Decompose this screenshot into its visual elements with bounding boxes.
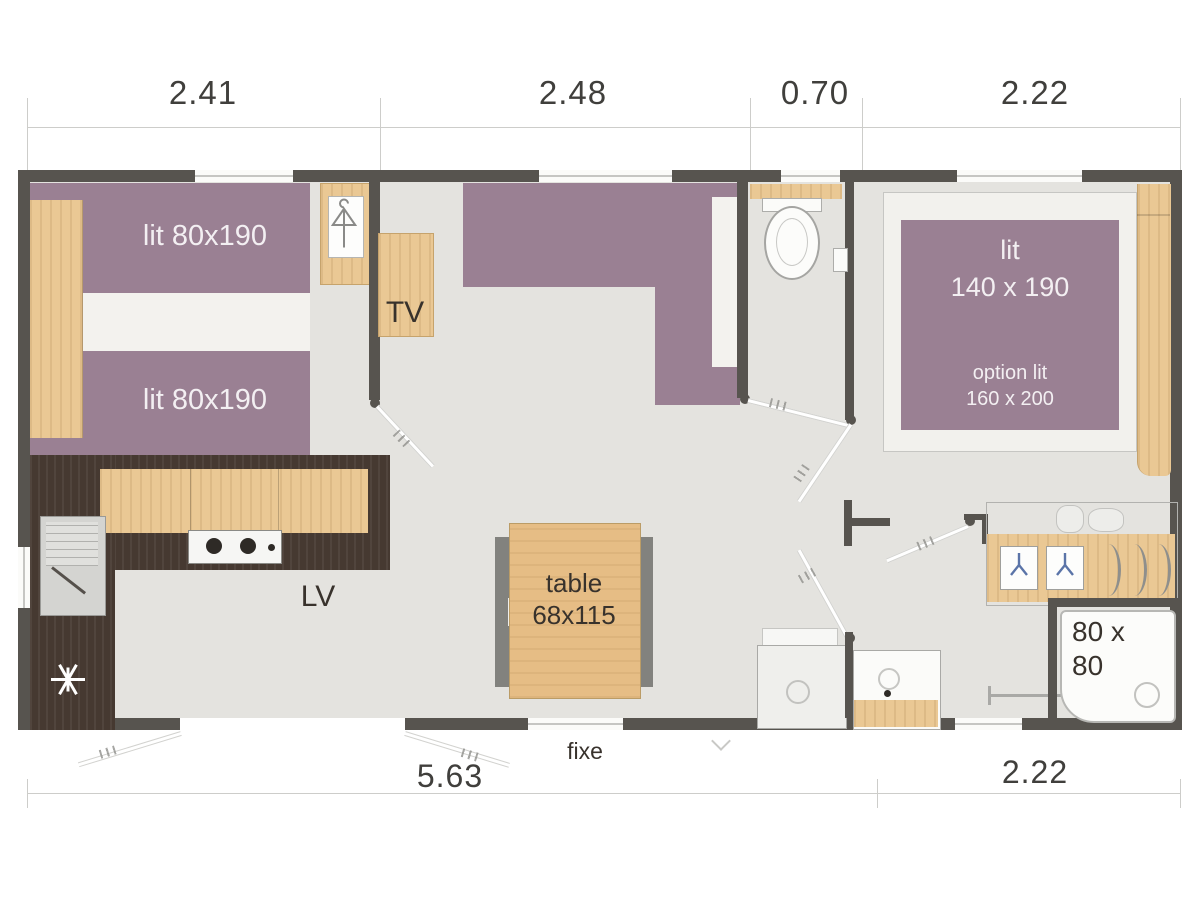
- wall-left: [18, 170, 30, 547]
- wall-bottom: [405, 718, 528, 730]
- worktop-seam: [190, 469, 191, 533]
- table-label-2: 68x115: [509, 600, 639, 631]
- towel-icon: [1122, 544, 1147, 596]
- faucet-icon: [1054, 551, 1076, 581]
- dimension-tick: [1180, 779, 1181, 808]
- kitchen-worktop: [100, 469, 368, 533]
- headboard-shelf: [30, 200, 83, 438]
- wall-top: [840, 170, 957, 182]
- wall-wc-left: [737, 182, 748, 398]
- water-heater-base: [854, 700, 938, 727]
- toiletries: [1088, 508, 1124, 532]
- wardrobe-right-seam: [1137, 214, 1170, 216]
- window-bedroom-left: [195, 170, 293, 182]
- wall-top: [293, 170, 539, 182]
- beds-gap: [82, 293, 310, 351]
- wall-shower-left: [1048, 598, 1057, 730]
- faucet-icon: [1008, 551, 1030, 581]
- stove-burner: [206, 538, 222, 554]
- tv-label: TV: [374, 296, 436, 330]
- dimension-tick: [1180, 98, 1181, 172]
- wall-top: [1082, 170, 1182, 182]
- bed-bottom-label: lit 80x190: [90, 384, 320, 417]
- wall-top: [672, 170, 781, 182]
- wc-shelf: [750, 184, 842, 199]
- washbasin: [1000, 546, 1038, 590]
- door-swing-marks: [99, 746, 117, 759]
- toilet-bowl-inner: [776, 218, 808, 266]
- wall-stub-hall: [846, 518, 890, 526]
- window-kitchen: [18, 547, 30, 608]
- double-bed-label-1: lit: [901, 235, 1119, 266]
- towel-icon: [1146, 544, 1171, 596]
- wardrobe-right: [1137, 184, 1171, 476]
- window-bathroom: [955, 718, 1022, 730]
- window-living: [539, 170, 672, 182]
- dimension-top-3: 0.70: [735, 74, 895, 112]
- washing-machine-door: [786, 680, 810, 704]
- dimension-bottom-right: 2.22: [965, 754, 1105, 791]
- sofa-side-shelf: [712, 197, 738, 367]
- washbasin: [1046, 546, 1084, 590]
- entry-door-leaf-left: [78, 731, 182, 767]
- dimension-tick: [380, 98, 381, 172]
- wall-top: [18, 170, 195, 182]
- dimension-tick: [27, 98, 28, 172]
- towel-icon: [1096, 544, 1121, 596]
- toilet-paper-holder: [833, 248, 848, 272]
- dimension-tick: [862, 98, 863, 172]
- dimension-line-top: [27, 127, 1180, 128]
- floor-plan: 2.41 2.48 0.70 2.22 lit 80x190 lit 80x19…: [0, 0, 1200, 900]
- double-bed-option-1: option lit: [901, 362, 1119, 385]
- stove-burner: [240, 538, 256, 554]
- toiletries: [1056, 505, 1084, 533]
- window-fixed: [528, 718, 623, 730]
- dimension-tick: [27, 779, 28, 808]
- sink-drainer: [46, 522, 98, 566]
- dimension-tick: [750, 98, 751, 172]
- wall-stub-appliance: [845, 632, 853, 718]
- shower-label-2: 80: [1072, 650, 1158, 682]
- window-bedroom-right: [957, 170, 1082, 182]
- wall-shower-top: [1048, 598, 1182, 607]
- heater-dot: [884, 690, 891, 697]
- dimension-top-4: 2.22: [955, 74, 1115, 112]
- window-wc: [781, 170, 840, 182]
- bed-top-label: lit 80x190: [90, 220, 320, 253]
- dimension-top-1: 2.41: [123, 74, 283, 112]
- dimension-top-2: 2.48: [493, 74, 653, 112]
- double-bed-option-2: 160 x 200: [901, 388, 1119, 411]
- snowflake-icon: [48, 660, 88, 700]
- worktop-seam: [278, 469, 279, 533]
- shower-label-1: 80 x: [1072, 616, 1158, 648]
- wall-wc-right: [845, 182, 854, 420]
- dimension-tick: [877, 779, 878, 808]
- wall-stub-hall: [844, 500, 852, 546]
- dishwasher-label: LV: [286, 580, 350, 614]
- shower-drain: [1134, 682, 1160, 708]
- vent-mark: [711, 731, 731, 751]
- wardrobe-interior: [328, 196, 364, 258]
- table-label-1: table: [509, 568, 639, 599]
- dimension-bottom-left: 5.63: [380, 758, 520, 795]
- sliding-door-stop: [988, 686, 991, 705]
- fixed-window-label: fixe: [540, 738, 630, 765]
- wall-left: [18, 608, 30, 730]
- double-bed-label-2: 140 x 190: [901, 272, 1119, 303]
- heater-dial: [878, 668, 900, 690]
- stove-knob: [268, 544, 275, 551]
- hanger-icon: [329, 197, 359, 253]
- dimension-line-bottom: [27, 793, 1180, 794]
